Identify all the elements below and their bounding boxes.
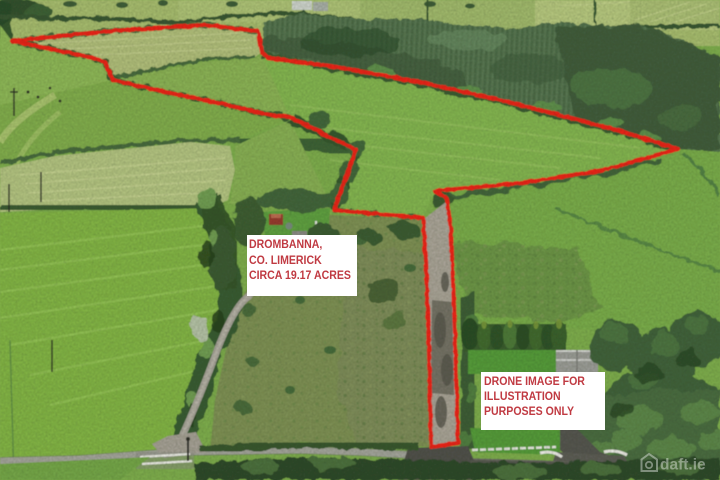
svg-text:daft.ie: daft.ie <box>660 457 706 474</box>
